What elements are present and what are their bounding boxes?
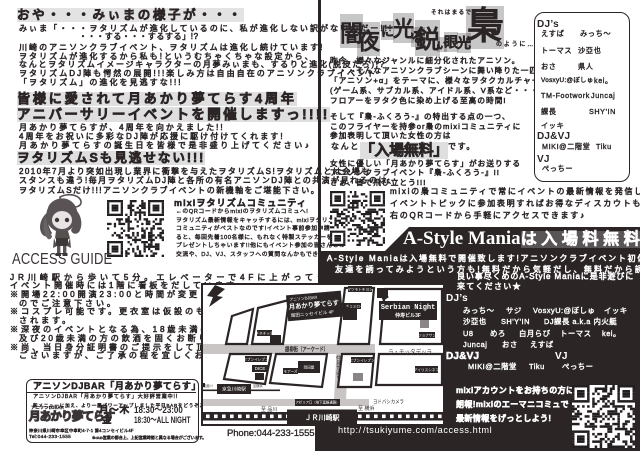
svg-text:ＪＲ川崎駅: ＪＲ川崎駅 — [305, 413, 341, 422]
svg-text:至 品川: 至 品川 — [261, 407, 277, 413]
svg-text:アイリスシネマ: アイリスシネマ — [414, 367, 439, 372]
svg-text:至横浜: 至横浜 — [253, 383, 263, 388]
svg-text:Serbian Night: Serbian Night — [381, 304, 436, 312]
svg-text:アゼリア口（地下連絡通路）: アゼリア口（地下連絡通路） — [295, 400, 339, 405]
svg-text:ヨドバシカメラ: ヨドバシカメラ — [373, 399, 404, 406]
svg-text:マツモトキヨシ: マツモトキヨシ — [347, 286, 373, 291]
svg-text:仲寿ビル3F: 仲寿ビル3F — [395, 312, 421, 319]
svg-text:至 横浜: 至 横浜 — [358, 405, 374, 412]
svg-text:セブンイレブン: セブンイレブン — [349, 357, 375, 362]
svg-text:仲見世通り: 仲見世通り — [335, 354, 341, 381]
svg-text:ラ・チッタデッラ: ラ・チッタデッラ — [388, 347, 432, 356]
svg-text:セブンイレブン: セブンイレブン — [243, 356, 269, 361]
svg-text:銀柳街（アーケード）: 銀柳街（アーケード） — [285, 346, 328, 354]
svg-text:ジョナサン: ジョナサン — [418, 332, 436, 337]
svg-text:至品川: 至品川 — [203, 384, 213, 388]
svg-text:京急川崎駅: 京急川崎駅 — [222, 386, 246, 393]
svg-text:モアーズ: モアーズ — [284, 368, 298, 373]
svg-text:岡田屋: 岡田屋 — [304, 364, 315, 369]
svg-text:DICE: DICE — [255, 366, 266, 371]
svg-text:チネチッタ: チネチッタ — [256, 330, 274, 335]
